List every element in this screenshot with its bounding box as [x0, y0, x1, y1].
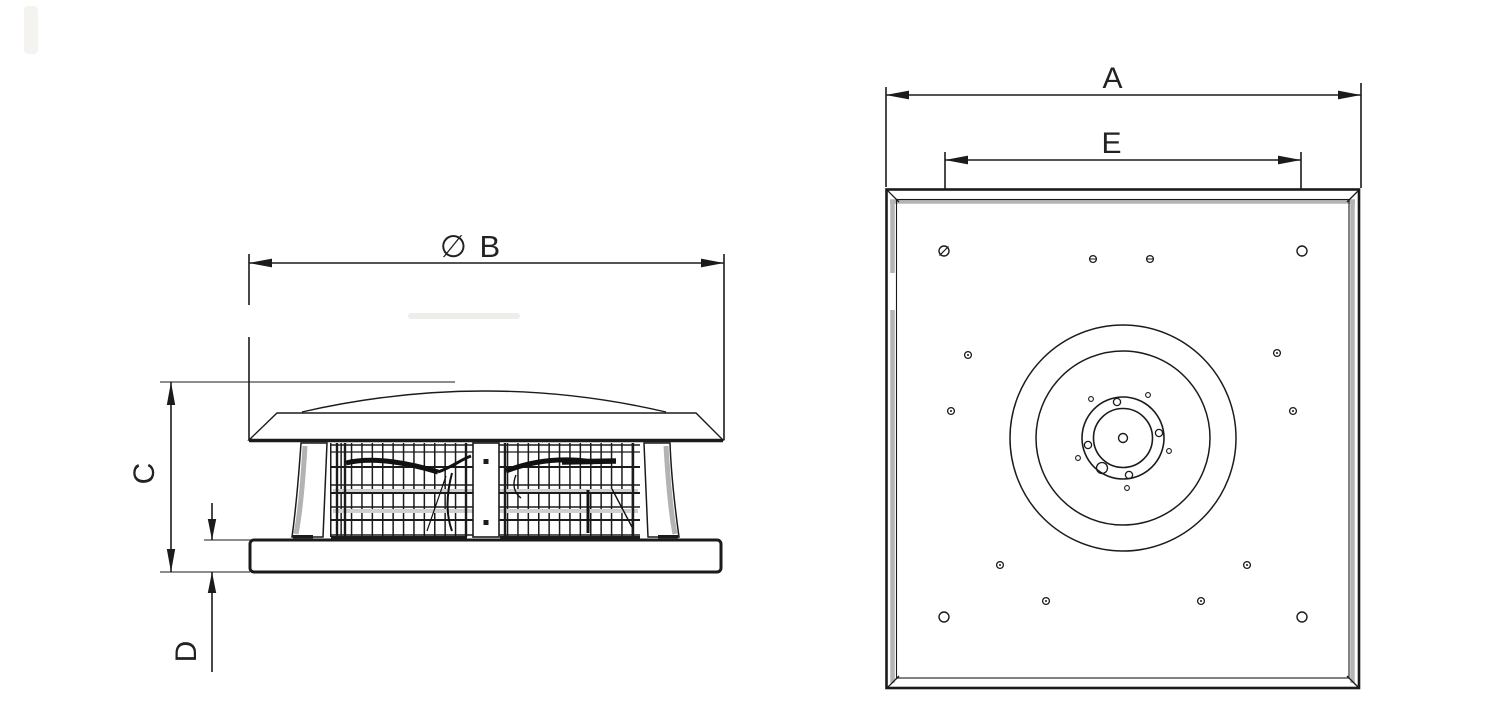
fan-dimensional-drawing: ∅ B C D: [0, 0, 1508, 709]
fan-cap: [249, 391, 723, 441]
arrowhead: [167, 382, 175, 405]
arrowhead: [1338, 91, 1361, 100]
arrowhead: [208, 572, 216, 593]
dim-d: D: [170, 503, 251, 672]
arrowhead: [208, 519, 216, 540]
top-view: A E: [886, 62, 1361, 688]
column-bolt: [484, 520, 489, 525]
cap-skirt: [249, 413, 723, 440]
technical-drawing-page: ∅ B C D: [0, 0, 1508, 709]
arrowhead: [945, 156, 968, 165]
arrowhead: [1278, 156, 1301, 165]
dim-e-label: E: [1101, 127, 1122, 160]
fan-grille: [292, 443, 679, 541]
arrowhead: [249, 259, 272, 268]
mounting-plate: [887, 190, 1360, 689]
arrowhead: [167, 549, 175, 572]
arrowhead: [701, 259, 724, 268]
column-bolt: [484, 459, 489, 464]
dim-a-label: A: [1102, 62, 1123, 95]
cap-dome: [302, 391, 666, 412]
arrowhead: [886, 91, 909, 100]
motor-column: [473, 443, 499, 537]
dim-a: A: [886, 62, 1361, 188]
dim-b-label: ∅ B: [440, 229, 502, 264]
watermark-smudge: [24, 6, 38, 54]
watermark: [24, 6, 520, 319]
side-view: ∅ B C D: [128, 229, 724, 672]
dim-c-label: C: [128, 462, 161, 485]
dim-d-label: D: [170, 640, 203, 663]
base-plate-side: [250, 540, 721, 572]
watermark-streak: [408, 313, 520, 319]
